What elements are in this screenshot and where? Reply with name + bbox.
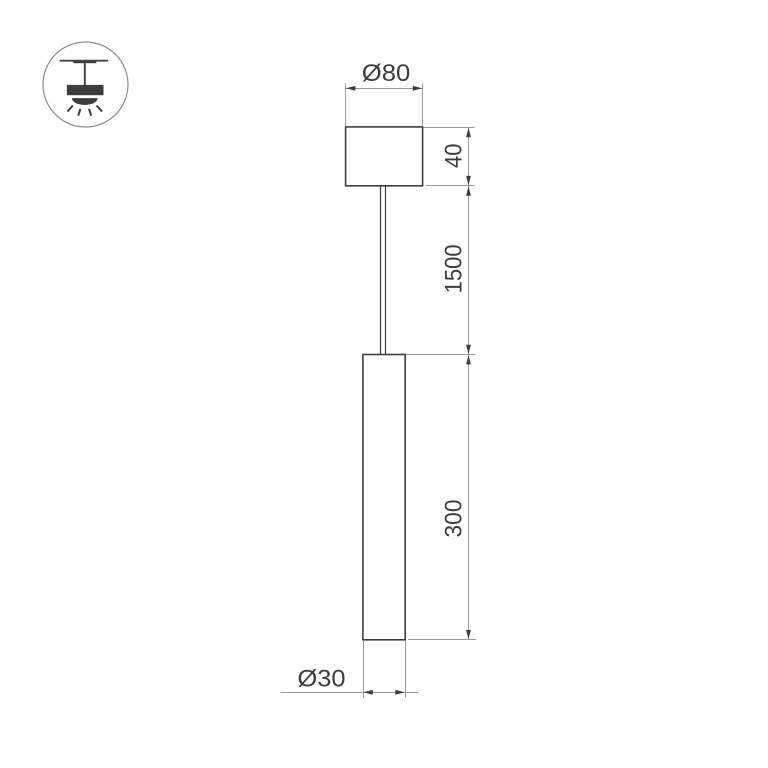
- svg-text:Ø30: Ø30: [298, 666, 346, 693]
- svg-text:1500: 1500: [441, 244, 468, 293]
- svg-text:300: 300: [440, 500, 467, 538]
- svg-text:Ø80: Ø80: [362, 60, 411, 87]
- svg-text:40: 40: [440, 144, 467, 169]
